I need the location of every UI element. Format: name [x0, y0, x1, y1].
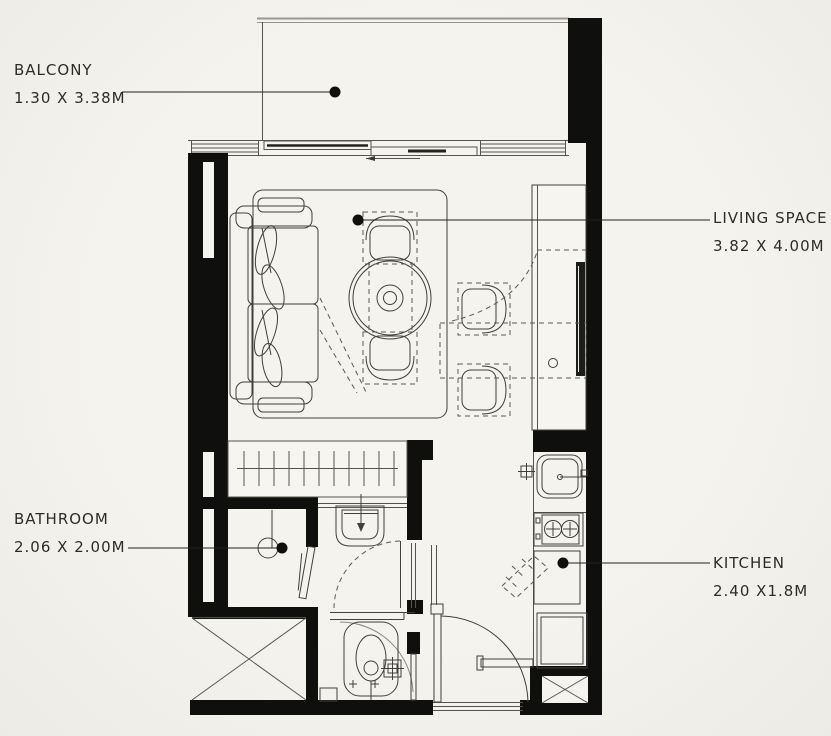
wc-bin — [320, 688, 337, 701]
wall-bathroom-top — [192, 497, 310, 509]
bathroom-leader-dot — [277, 543, 288, 554]
living-leader-dot — [353, 215, 364, 226]
window-sliding-door — [188, 141, 569, 162]
kitchen-area — [502, 452, 587, 668]
entry-door-leaf — [434, 614, 441, 702]
wc-room — [320, 613, 416, 702]
dining-chair-right-2 — [458, 364, 510, 416]
sofa — [230, 198, 366, 412]
balcony-leader-dot — [330, 87, 341, 98]
stove — [534, 513, 583, 546]
bathroom-sink — [336, 494, 384, 546]
toilet — [344, 622, 398, 700]
void-shaft-bottom-left — [192, 618, 306, 701]
sofa-seat-cushion-1 — [248, 226, 318, 304]
faucet-arrow — [357, 523, 365, 532]
entry-threshold — [433, 703, 523, 711]
wall-corridor-corner — [420, 440, 433, 460]
kitchen-label: KITCHEN 2.40 X1.8M — [713, 556, 808, 599]
sofa-armrest-bottom — [236, 382, 312, 404]
sofa-pillows — [250, 224, 289, 389]
living-label: LIVING SPACE 3.82 X 4.00M — [713, 211, 828, 254]
fridge — [537, 613, 587, 668]
balcony-label: BALCONY 1.30 X 3.38M — [14, 63, 126, 106]
wall-shower-partition — [306, 497, 318, 547]
entry-door-leaf-open — [477, 656, 533, 670]
bathroom-area — [258, 494, 416, 701]
sofa-armrest-top — [236, 206, 312, 228]
window-pane-right — [480, 141, 566, 155]
floor-drain — [381, 657, 404, 680]
kitchen-leader-dot — [558, 558, 569, 569]
wc-door-swing — [340, 622, 413, 692]
sofa-armrest-bottom-cap — [258, 398, 304, 412]
floor-plan-drawing — [0, 0, 831, 736]
sofa-armrest-top-cap — [258, 198, 304, 212]
dining-table — [349, 257, 431, 339]
wc-door-leaf — [411, 654, 416, 700]
kitchen-dims: 2.40 X1.8M — [713, 584, 808, 599]
wall-left-recess-upper — [203, 162, 214, 258]
bathroom-dims: 2.06 X 2.00M — [14, 540, 126, 555]
door-swing-arc — [334, 541, 400, 608]
balcony-name: BALCONY — [14, 63, 126, 78]
sofa-bed-fold-lines — [320, 298, 366, 393]
wall-wc-right-lower — [407, 632, 420, 654]
wall-left-recess-lower — [203, 452, 214, 602]
balcony-dims: 1.30 X 3.38M — [14, 91, 126, 106]
wall-corridor-left-upper — [407, 440, 422, 540]
dining-chair-right-1 — [458, 283, 510, 335]
wall-right — [586, 143, 602, 715]
wall-column-top-right — [568, 18, 602, 143]
window-pane-left — [191, 141, 259, 155]
entry-door-hinge — [431, 604, 443, 614]
fold-board-dashed — [502, 556, 548, 598]
kitchen-name: KITCHEN — [713, 556, 808, 571]
light-switch — [518, 463, 535, 480]
wall-kitchen-top — [533, 430, 586, 452]
balcony-area — [257, 19, 569, 141]
living-name: LIVING SPACE — [713, 211, 828, 226]
bathroom-label: BATHROOM 2.06 X 2.00M — [14, 512, 126, 555]
dining-chair-bottom — [363, 332, 417, 384]
cabinet-swing-dashed — [452, 252, 537, 321]
floor-plan: BALCONY 1.30 X 3.38M LIVING SPACE 3.82 X… — [0, 0, 831, 736]
wall-wc-left — [306, 607, 318, 700]
bathroom-name: BATHROOM — [14, 512, 126, 527]
counter-appliance — [576, 262, 585, 376]
shower-door-leaf — [294, 545, 315, 598]
entry — [431, 545, 533, 711]
sofa-seat-cushion-2 — [248, 304, 318, 382]
kitchen-sink — [537, 455, 587, 498]
kitchen-counter — [502, 551, 580, 604]
living-dims: 3.82 X 4.00M — [713, 239, 828, 254]
shower — [258, 510, 278, 558]
wardrobe — [228, 441, 407, 497]
bathroom-door — [334, 541, 416, 608]
slide-direction-arrow — [366, 156, 420, 161]
shaft-x-box — [530, 666, 602, 715]
wall-bottom-left — [190, 700, 433, 715]
